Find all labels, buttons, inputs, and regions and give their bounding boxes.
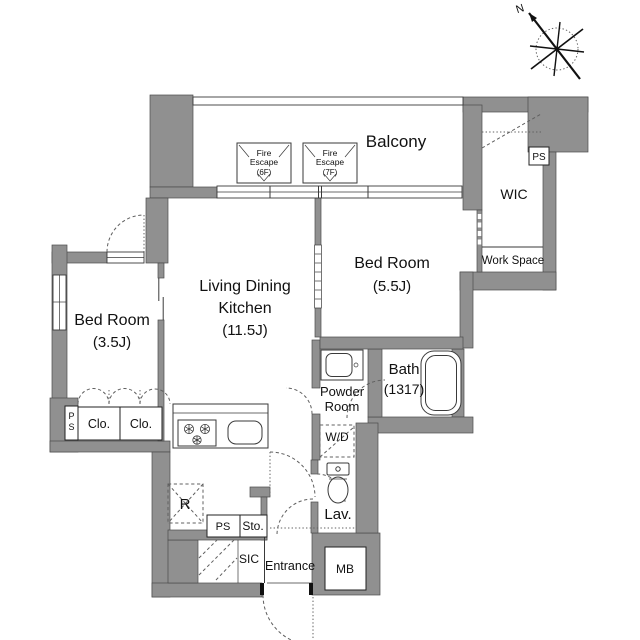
- fire-escape-hatch-6f: Fire Escape (6F): [237, 143, 291, 183]
- fire-escape-floor: (6F): [257, 168, 272, 177]
- closet-curtain-arc: [109, 389, 140, 405]
- storage-label: Sto.: [242, 519, 263, 533]
- bedroom35-size: (3.5J): [93, 334, 131, 351]
- bath-label: Bath: [389, 361, 420, 378]
- washer-dryer-label: W/D: [325, 430, 349, 444]
- floor-plan-canvas: Fire Escape (6F) Fire Escape (7F) N Balc…: [0, 0, 640, 640]
- kitchen-counter: [173, 404, 268, 448]
- sic-label: SIC: [239, 552, 259, 566]
- ldk-hall-door-arc: [270, 452, 315, 497]
- door-jamb: [309, 583, 313, 595]
- wic-label: WIC: [500, 186, 527, 202]
- meter-box-label: MB: [336, 562, 354, 576]
- bath-size: (1317): [384, 381, 424, 397]
- kitchen-sink: [228, 421, 262, 444]
- vanity-sink: [321, 350, 363, 380]
- bedroom55-size: (5.5J): [373, 278, 411, 295]
- ldk-label-2: Kitchen: [218, 300, 271, 317]
- bathtub: [421, 351, 461, 415]
- ps-left-p: P: [68, 411, 74, 421]
- compass: N: [514, 2, 584, 79]
- balcony-railing: [193, 97, 463, 105]
- service-boxes: [65, 147, 549, 590]
- refrigerator-label: R: [180, 496, 191, 513]
- fire-escape-hatch-7f: Fire Escape (7F): [303, 143, 357, 183]
- bedroom35-window-swing: [107, 215, 144, 252]
- closet-curtain-arc: [78, 389, 109, 405]
- workspace-label: Work Space: [482, 255, 544, 267]
- toilet: [327, 463, 349, 503]
- powder-label-2: Room: [325, 399, 360, 414]
- powder-door-arc: [286, 388, 312, 414]
- powder-label-1: Powder: [320, 384, 365, 399]
- closet-curtain-arc: [140, 389, 170, 404]
- sic-shelves: [199, 540, 237, 580]
- ps-hall-label: PS: [216, 521, 231, 533]
- entrance-door-arc: [263, 595, 313, 640]
- ldk-label-1: Living Dining: [199, 278, 291, 295]
- ldk-size: (11.5J): [222, 322, 268, 339]
- balcony-label: Balcony: [366, 132, 427, 151]
- bedroom35-label: Bed Room: [74, 312, 150, 329]
- floor-plan-page: Fire Escape (6F) Fire Escape (7F) N Balc…: [0, 0, 640, 640]
- hall-entrance-door-arc: [277, 499, 313, 535]
- ps-top-label: PS: [532, 152, 546, 163]
- closet-2-label: Clo.: [130, 417, 152, 431]
- closet-1-label: Clo.: [88, 417, 110, 431]
- entrance-label: Entrance: [265, 559, 315, 573]
- north-label: N: [514, 2, 525, 16]
- lavatory-label: Lav.: [324, 506, 351, 523]
- fire-escape-floor: (7F): [323, 168, 338, 177]
- bedroom55-label: Bed Room: [354, 255, 430, 272]
- fire-escape-label: Escape: [316, 157, 345, 167]
- fire-escape-label: Escape: [250, 157, 279, 167]
- door-jamb: [260, 583, 264, 595]
- ldk-bedroom-sliding-door: [315, 245, 322, 308]
- ps-left-s: S: [68, 422, 74, 432]
